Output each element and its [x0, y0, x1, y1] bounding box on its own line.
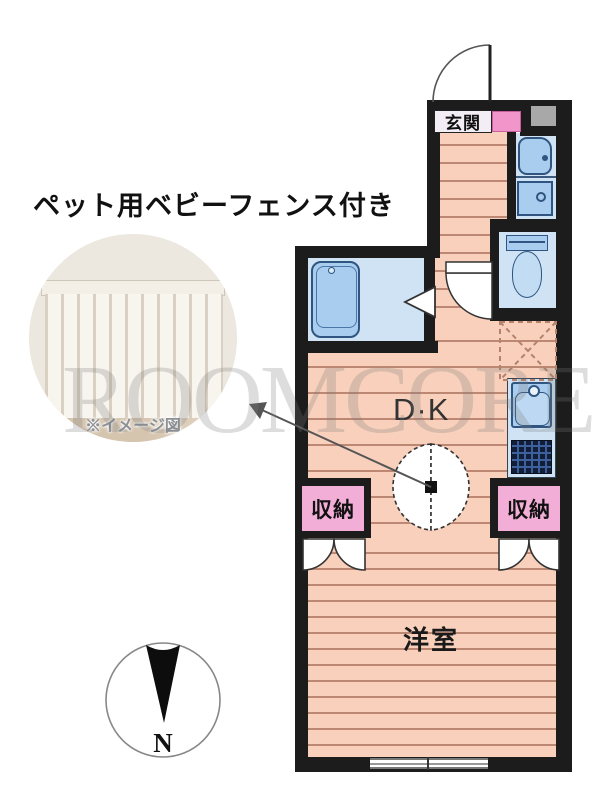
western-room-label: 洋室	[403, 620, 459, 657]
compass-north-label: N	[153, 728, 173, 758]
closet-left-doors	[303, 539, 365, 570]
toilet-door-arc	[446, 273, 492, 319]
closet-right-doors	[499, 539, 559, 570]
entrance-door-arc	[433, 45, 490, 102]
plan-symbols-layer: N	[0, 0, 600, 800]
compass: N	[106, 643, 220, 758]
dk-label: D·K	[393, 392, 449, 428]
bathroom-door-icon	[405, 287, 435, 317]
toilet-door-leaf	[446, 262, 492, 273]
floorplan-page: ペット用ベビーフェンス付き ※イメージ図	[0, 0, 600, 800]
refrigerator-space	[500, 322, 556, 380]
